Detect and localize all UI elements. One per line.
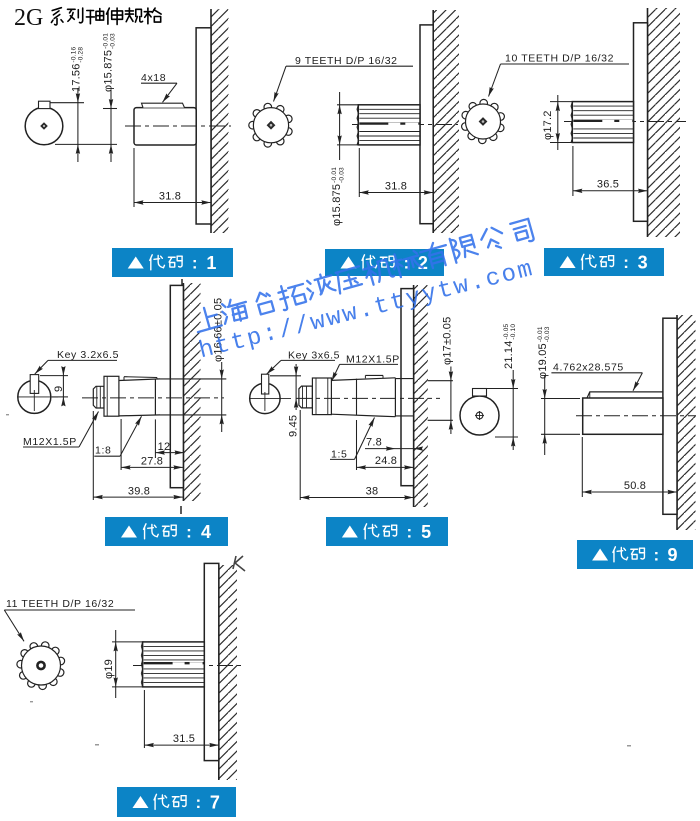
svg-text:φ15.875-0.01-0.03: φ15.875-0.01-0.03 [102, 33, 116, 92]
svg-text:1:5: 1:5 [331, 449, 347, 461]
svg-text:1: 1 [206, 253, 216, 273]
svg-text:31.5: 31.5 [173, 733, 195, 745]
svg-text::: : [196, 793, 202, 812]
svg-text:11 TEETH D/P 16/32: 11 TEETH D/P 16/32 [6, 598, 114, 610]
svg-text:φ15.875-0.01-0.03: φ15.875-0.01-0.03 [331, 167, 345, 226]
svg-text:M12X1.5P: M12X1.5P [346, 354, 400, 366]
svg-text:31.8: 31.8 [385, 181, 407, 193]
svg-text:Key 3x6.5: Key 3x6.5 [288, 350, 340, 362]
svg-text::: : [407, 523, 413, 542]
svg-text:φ17.2: φ17.2 [542, 110, 554, 140]
svg-text:4: 4 [201, 522, 211, 542]
svg-text:50.8: 50.8 [624, 480, 646, 492]
svg-text:1:8: 1:8 [95, 445, 111, 457]
svg-text:36.5: 36.5 [597, 179, 619, 191]
svg-text:4.762x28.575: 4.762x28.575 [553, 362, 624, 374]
svg-text:M12X1.5P: M12X1.5P [23, 436, 77, 448]
svg-text:31.8: 31.8 [159, 191, 181, 203]
svg-text:7: 7 [210, 793, 220, 813]
svg-text:38: 38 [366, 486, 379, 498]
svg-text:9.45: 9.45 [288, 415, 300, 437]
svg-text::: : [192, 254, 198, 273]
svg-text:27.8: 27.8 [141, 456, 163, 468]
svg-text:7.8: 7.8 [366, 436, 382, 448]
svg-text:2: 2 [418, 253, 428, 273]
svg-text:24.8: 24.8 [375, 455, 397, 467]
svg-text:9: 9 [53, 386, 65, 392]
svg-text:17.56-0.16-0.28: 17.56-0.16-0.28 [70, 46, 84, 92]
svg-text:φ17±0.05: φ17±0.05 [442, 317, 454, 365]
svg-text:Key 3.2x6.5: Key 3.2x6.5 [57, 349, 119, 361]
svg-text::: : [623, 253, 629, 272]
svg-text:9 TEETH D/P 16/32: 9 TEETH D/P 16/32 [295, 55, 398, 67]
svg-text:3: 3 [638, 253, 648, 273]
svg-text:39.8: 39.8 [128, 485, 150, 497]
svg-text:10 TEETH D/P 16/32: 10 TEETH D/P 16/32 [505, 53, 614, 65]
svg-text::: : [654, 546, 660, 565]
svg-text::: : [186, 523, 192, 542]
svg-text:4x18: 4x18 [141, 72, 166, 84]
svg-text:21.14-0.05-0.10: 21.14-0.05-0.10 [503, 323, 517, 369]
svg-text:2G: 2G [14, 5, 43, 31]
svg-text:φ19.05-0.01-0.03: φ19.05-0.01-0.03 [537, 326, 551, 379]
svg-text:9: 9 [667, 545, 677, 565]
svg-text:12: 12 [158, 441, 171, 453]
svg-text:φ19: φ19 [103, 659, 115, 679]
svg-text:5: 5 [421, 522, 431, 542]
